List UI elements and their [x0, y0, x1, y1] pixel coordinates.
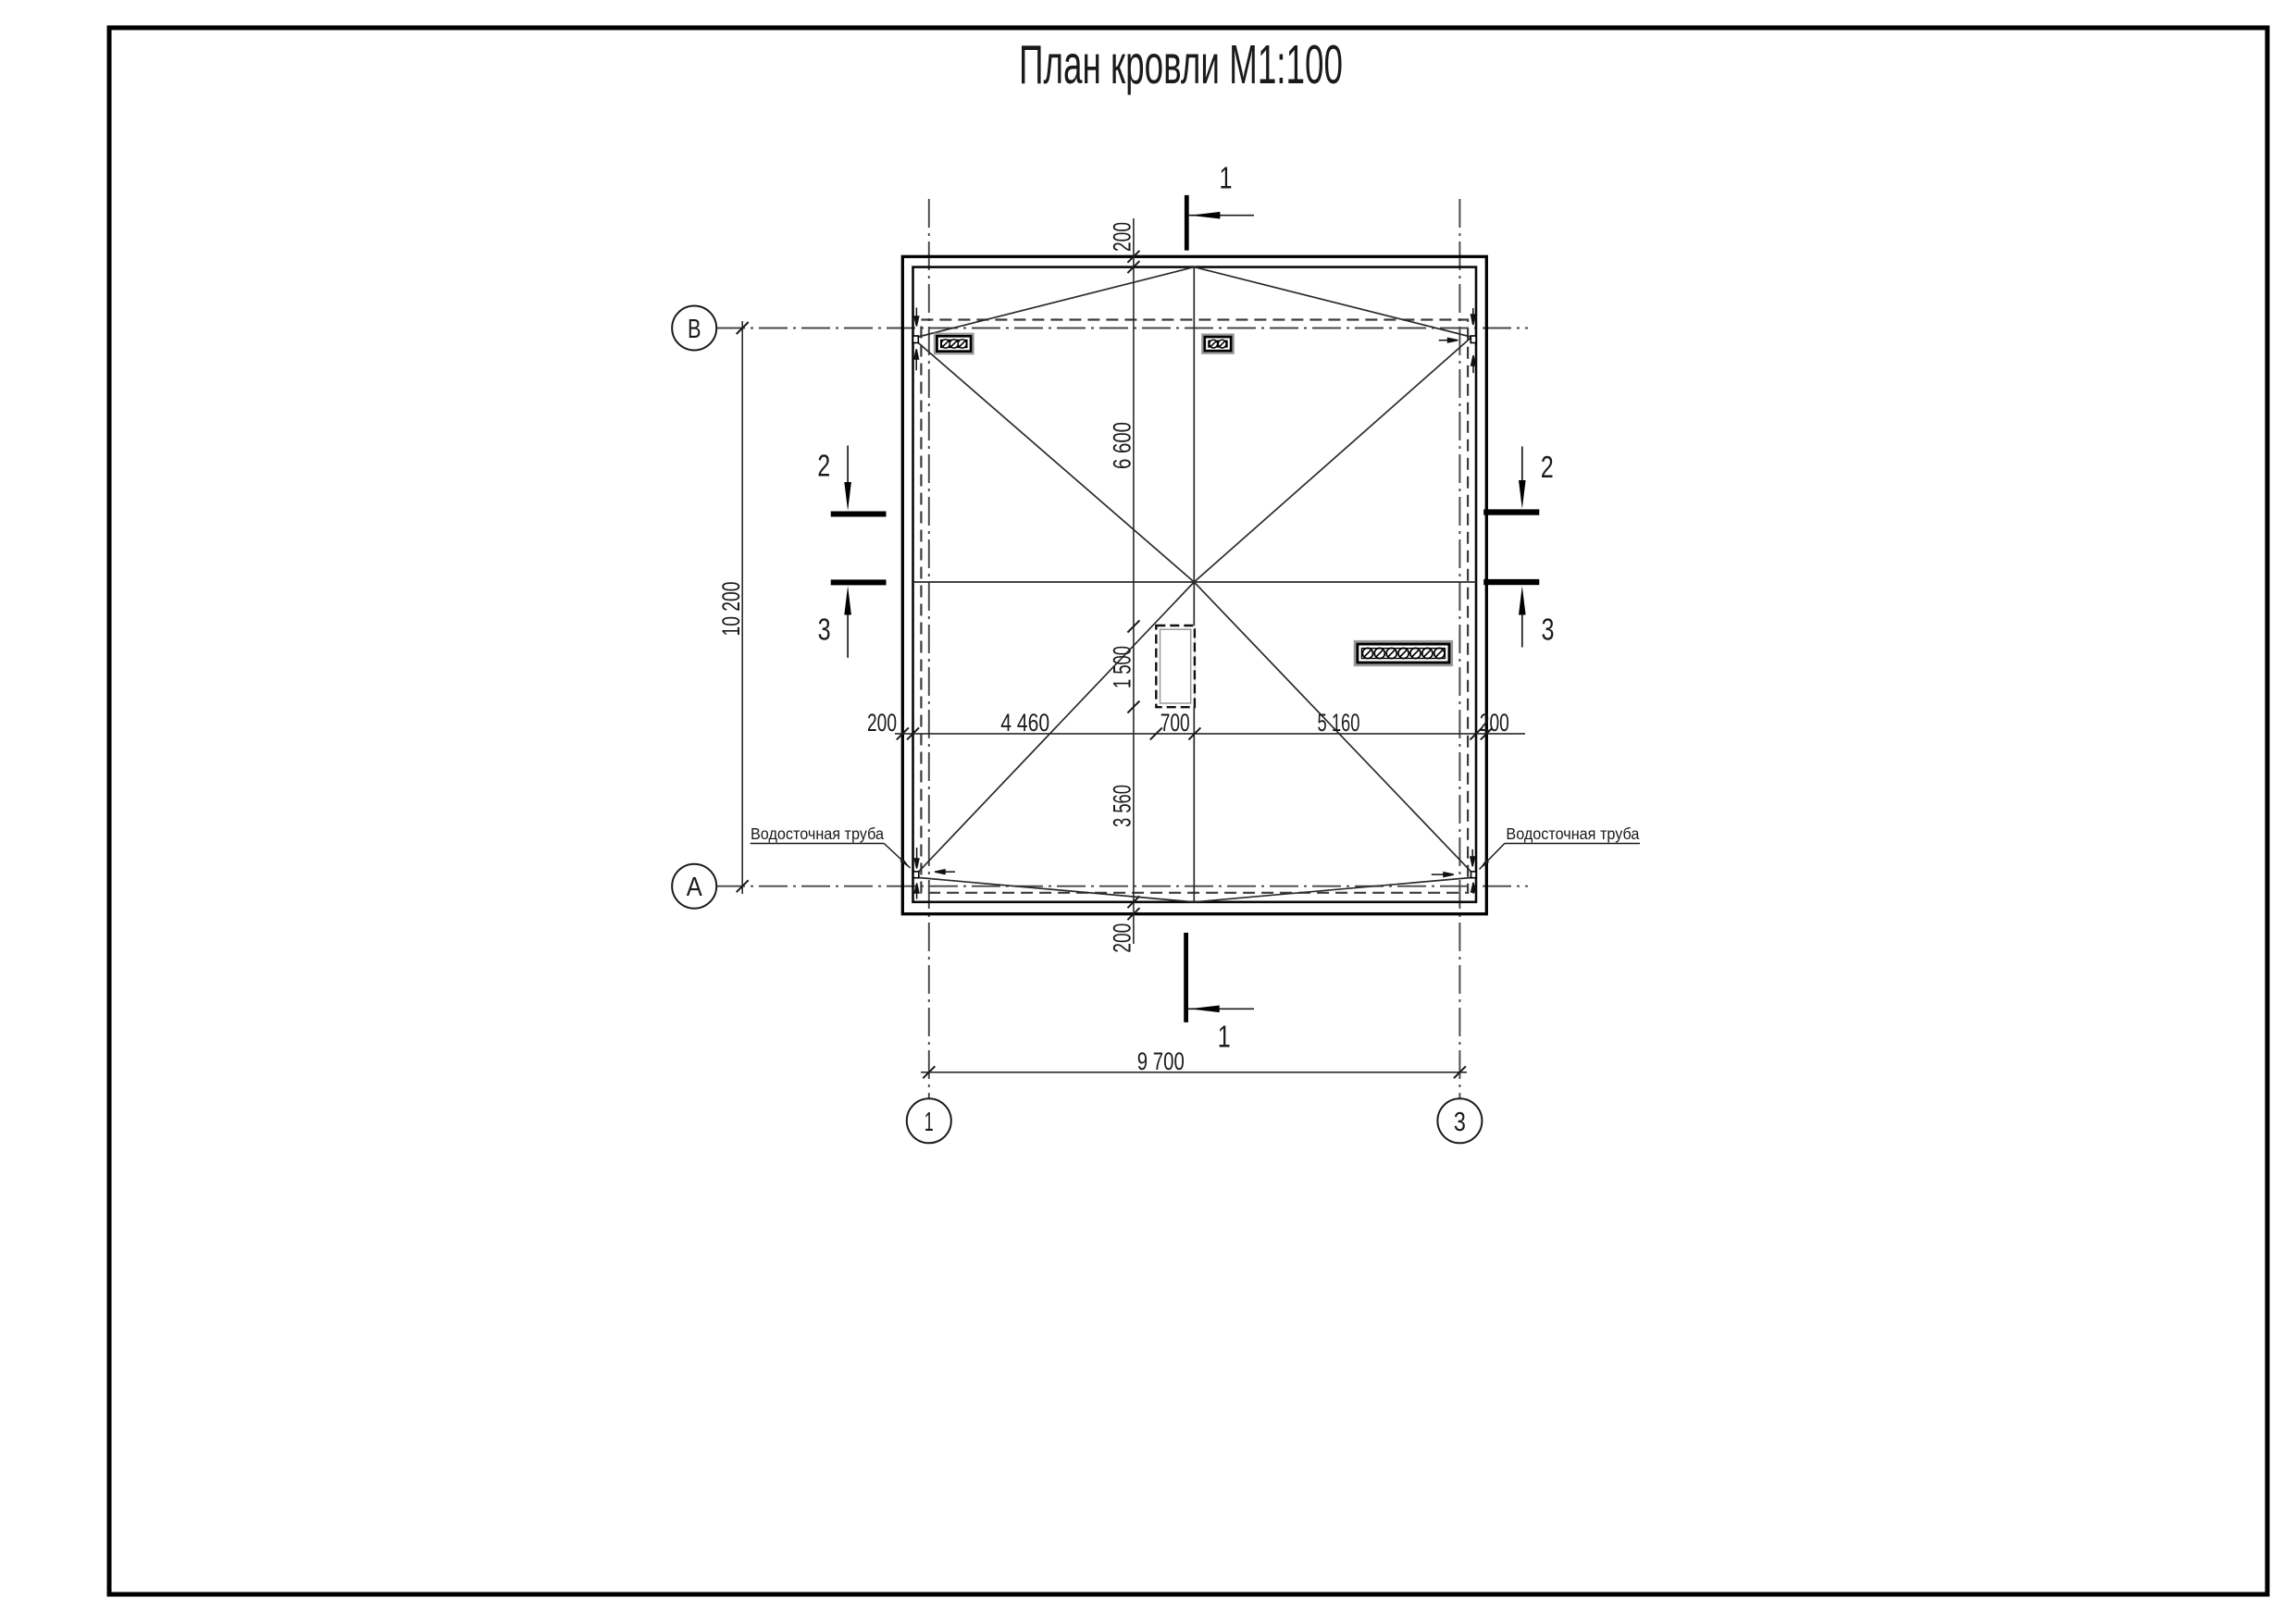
svg-text:200: 200 — [1480, 709, 1509, 737]
svg-text:2: 2 — [817, 448, 830, 482]
svg-text:6 600: 6 600 — [1109, 422, 1136, 469]
svg-text:200: 200 — [1109, 222, 1136, 252]
svg-text:700: 700 — [1160, 709, 1190, 737]
svg-text:9 700: 9 700 — [1137, 1047, 1185, 1075]
svg-text:3: 3 — [1542, 612, 1555, 646]
svg-text:1: 1 — [1218, 1019, 1231, 1053]
svg-text:1: 1 — [1220, 161, 1233, 195]
svg-text:Водосточная труба: Водосточная труба — [1506, 824, 1639, 843]
svg-text:1: 1 — [925, 1108, 934, 1137]
svg-text:200: 200 — [1109, 923, 1136, 953]
svg-text:4 460: 4 460 — [1000, 709, 1049, 737]
svg-text:10 200: 10 200 — [717, 582, 745, 637]
svg-text:5 160: 5 160 — [1318, 709, 1360, 737]
svg-text:1 500: 1 500 — [1109, 646, 1136, 688]
svg-text:3 560: 3 560 — [1109, 785, 1136, 827]
svg-text:В: В — [688, 315, 701, 344]
svg-text:2: 2 — [1541, 450, 1554, 484]
svg-text:А: А — [687, 873, 703, 902]
svg-text:План кровли М1:100: План кровли М1:100 — [1019, 34, 1343, 95]
svg-text:Водосточная труба: Водосточная труба — [751, 824, 884, 843]
svg-text:3: 3 — [818, 612, 831, 646]
svg-text:3: 3 — [1454, 1108, 1466, 1137]
svg-text:200: 200 — [867, 709, 897, 737]
